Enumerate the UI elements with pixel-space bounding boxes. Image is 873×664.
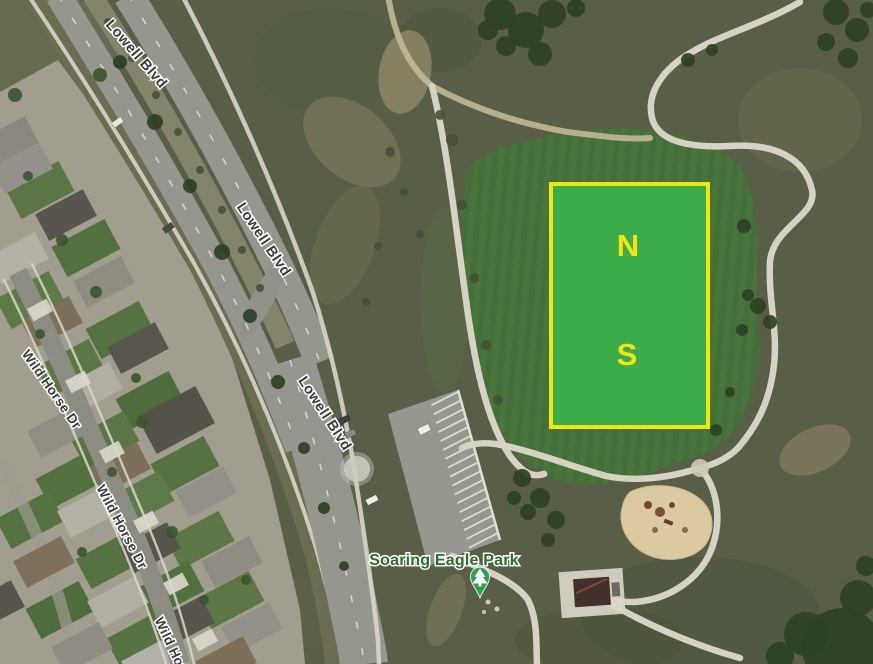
overlay-label-s: S <box>617 337 638 372</box>
satellite-imagery: Lowell Blvd Lowell Blvd Lowell Blvd Wild… <box>0 0 873 664</box>
park-name-label[interactable]: Soaring Eagle Park <box>369 552 518 569</box>
field-overlay-rectangle: N S <box>551 184 708 427</box>
park-building <box>559 568 626 618</box>
location-dot <box>340 452 374 486</box>
overlay-rect <box>551 184 708 427</box>
map-viewport[interactable]: Lowell Blvd Lowell Blvd Lowell Blvd Wild… <box>0 0 873 664</box>
overlay-label-n: N <box>617 228 639 263</box>
